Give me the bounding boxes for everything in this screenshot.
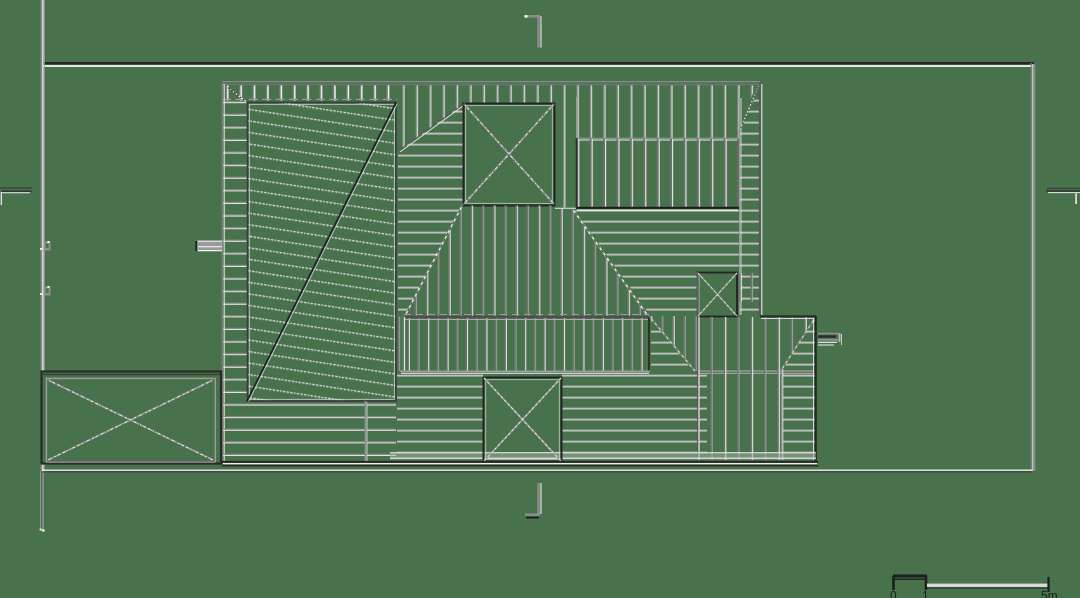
svg-text:0: 0: [890, 589, 897, 598]
svg-text:5m: 5m: [1041, 589, 1058, 598]
svg-text:1: 1: [922, 589, 929, 598]
